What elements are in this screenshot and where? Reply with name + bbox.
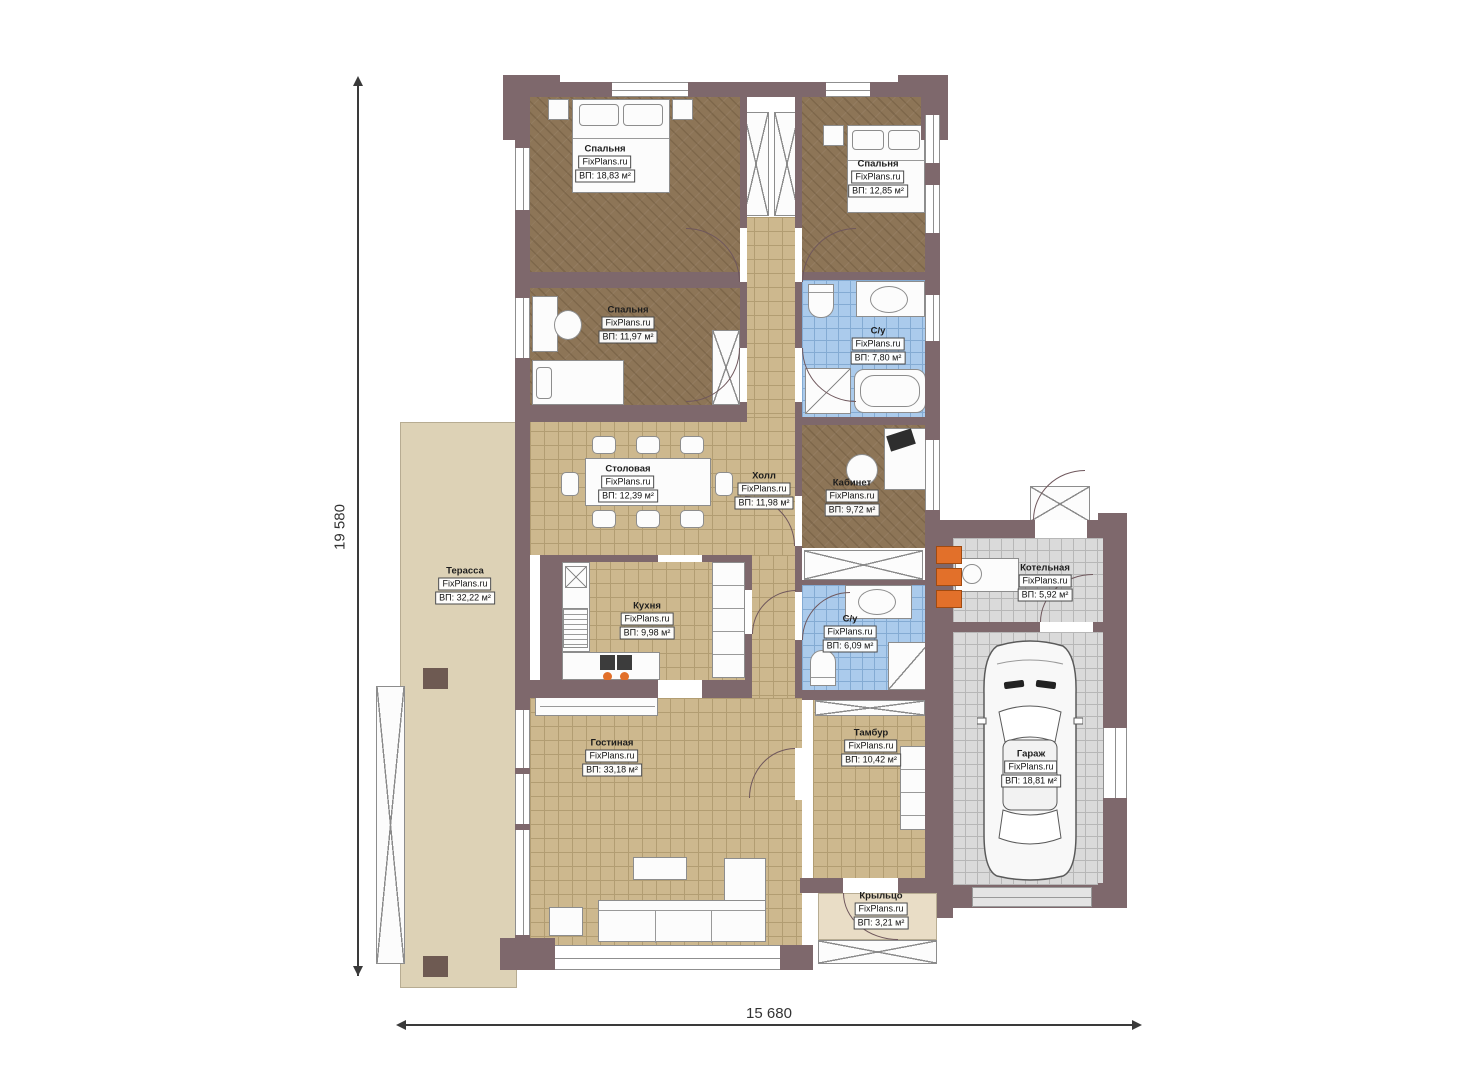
door-opening xyxy=(745,590,752,634)
floor-plan: Спальня FixPlans.ru ВП: 18,83 м² Спальня… xyxy=(0,0,1474,1080)
room-name: Холл xyxy=(752,471,776,482)
dim-arrow-up xyxy=(353,76,363,86)
kitchen-sink-icon xyxy=(565,566,587,588)
brand-watermark: FixPlans.ru xyxy=(823,626,876,639)
wall-segment xyxy=(540,555,562,698)
room-name: Спальня xyxy=(607,305,648,316)
chair-icon xyxy=(680,436,704,454)
wall-segment xyxy=(802,690,940,700)
room-area: ВП: 9,98 м² xyxy=(620,627,675,640)
dimension-line-vertical xyxy=(357,78,359,976)
brand-watermark: FixPlans.ru xyxy=(844,740,897,753)
room-name: Спальня xyxy=(857,159,898,170)
brand-watermark: FixPlans.ru xyxy=(601,476,654,489)
chair-icon xyxy=(636,436,660,454)
wall-segment xyxy=(937,878,953,918)
window xyxy=(555,945,780,970)
room-area: ВП: 33,18 м² xyxy=(582,764,642,777)
door-opening xyxy=(795,228,802,282)
window xyxy=(515,298,530,358)
room-label-bedroom3: Спальня FixPlans.ru ВП: 11,97 м² xyxy=(598,305,657,344)
room-name: Гараж xyxy=(1017,749,1045,760)
brand-watermark: FixPlans.ru xyxy=(1004,761,1057,774)
bed-icon xyxy=(532,360,624,405)
nightstand-icon xyxy=(548,99,569,120)
window-mullion xyxy=(515,768,530,774)
room-area: ВП: 3,21 м² xyxy=(854,917,909,930)
chair-icon xyxy=(680,510,704,528)
chair-icon xyxy=(592,436,616,454)
wall-segment xyxy=(540,555,745,562)
pass-opening xyxy=(658,680,702,698)
electric-panel-icon xyxy=(936,546,962,564)
room-name: Гостиная xyxy=(591,738,634,749)
window xyxy=(826,82,870,97)
room-label-dining: Столовая FixPlans.ru ВП: 12,39 м² xyxy=(598,464,658,503)
chair-icon xyxy=(592,510,616,528)
shower-icon xyxy=(888,642,930,690)
brand-watermark: FixPlans.ru xyxy=(854,903,907,916)
brand-watermark: FixPlans.ru xyxy=(1018,575,1071,588)
dim-arrow-right xyxy=(1132,1020,1142,1030)
closet-icon xyxy=(804,550,923,580)
terrace-floor xyxy=(400,422,517,988)
pillow-icon xyxy=(579,104,619,126)
brand-watermark: FixPlans.ru xyxy=(851,338,904,351)
door-opening xyxy=(795,496,802,546)
brand-watermark: FixPlans.ru xyxy=(438,578,491,591)
window xyxy=(925,440,940,510)
room-label-porch: Крыльцо FixPlans.ru ВП: 3,21 м² xyxy=(854,891,909,930)
chair-icon xyxy=(715,472,733,496)
corner-pillar xyxy=(1098,513,1127,538)
room-area: ВП: 12,85 м² xyxy=(848,185,908,198)
room-area: ВП: 9,72 м² xyxy=(825,504,880,517)
terrace-post xyxy=(423,668,448,689)
brand-watermark: FixPlans.ru xyxy=(851,171,904,184)
chair-icon xyxy=(636,510,660,528)
window-mullion xyxy=(515,824,530,830)
bathtub-icon xyxy=(854,369,926,413)
wall-segment xyxy=(780,945,813,970)
pillow-icon xyxy=(852,130,884,150)
room-name: С/у xyxy=(871,326,886,337)
door-opening xyxy=(795,348,802,402)
corner-pillar xyxy=(503,75,530,140)
room-label-living: Гостиная FixPlans.ru ВП: 33,18 м² xyxy=(582,738,642,777)
room-name: Кабинет xyxy=(833,478,871,489)
window xyxy=(925,185,940,233)
pantry-cabinet-icon xyxy=(712,562,745,678)
hall-corridor-floor xyxy=(740,217,802,417)
dimension-width: 15 680 xyxy=(746,1005,792,1022)
wall-segment xyxy=(515,405,747,422)
garage-door xyxy=(972,887,1092,907)
room-label-bedroom2: Спальня FixPlans.ru ВП: 12,85 м² xyxy=(848,159,908,198)
room-name: Столовая xyxy=(605,464,650,475)
room-name: Крыльцо xyxy=(859,891,902,902)
room-name: Спальня xyxy=(584,144,625,155)
wardrobe-icon xyxy=(900,746,927,830)
dim-arrow-left xyxy=(396,1020,406,1030)
brand-watermark: FixPlans.ru xyxy=(825,490,878,503)
room-area: ВП: 5,92 м² xyxy=(1018,589,1073,602)
wall-segment xyxy=(802,417,940,425)
dim-arrow-down xyxy=(353,966,363,976)
toilet-icon xyxy=(808,284,834,318)
window xyxy=(1103,728,1127,798)
brand-watermark: FixPlans.ru xyxy=(737,483,790,496)
chair-icon xyxy=(561,472,579,496)
room-label-kitchen: Кухня FixPlans.ru ВП: 9,98 м² xyxy=(620,601,675,640)
door-swing xyxy=(1033,470,1085,520)
door-opening xyxy=(740,348,747,402)
porch-steps xyxy=(818,940,937,964)
wall-segment xyxy=(515,82,940,97)
coffee-table-icon xyxy=(633,857,687,880)
toilet-icon xyxy=(810,650,836,686)
pillow-icon xyxy=(536,367,552,399)
electric-panel-icon xyxy=(936,590,962,608)
cooktop-icon xyxy=(617,655,632,670)
cooktop-icon xyxy=(600,655,615,670)
kitchen-island-icon xyxy=(535,696,658,716)
window xyxy=(925,115,940,163)
bathtub-basin xyxy=(860,375,920,407)
terrace-post xyxy=(423,956,448,977)
corner-pillar xyxy=(1098,883,1127,908)
wall-segment xyxy=(795,417,802,698)
sofa-icon xyxy=(598,900,766,942)
wall-segment xyxy=(515,680,658,698)
wall-segment xyxy=(1103,520,1127,908)
terrace-ramp xyxy=(376,686,405,964)
room-name: Терасса xyxy=(446,566,484,577)
pillow-icon xyxy=(623,104,663,126)
pass-opening xyxy=(658,555,702,562)
room-area: ВП: 12,39 м² xyxy=(598,490,658,503)
room-area: ВП: 7,80 м² xyxy=(851,352,906,365)
room-label-bathroom2: С/у FixPlans.ru ВП: 6,09 м² xyxy=(823,614,878,653)
wall-segment xyxy=(702,680,752,698)
door-opening xyxy=(1035,520,1087,538)
room-name: С/у xyxy=(843,614,858,625)
pillow-icon xyxy=(888,130,920,150)
room-name: Тамбур xyxy=(854,728,888,739)
room-area: ВП: 18,83 м² xyxy=(575,170,635,183)
closet-icon xyxy=(815,700,925,716)
corner-pillar xyxy=(500,938,555,970)
room-label-garage: Гараж FixPlans.ru ВП: 18,81 м² xyxy=(1001,749,1061,788)
room-name: Котельная xyxy=(1020,563,1070,574)
brand-watermark: FixPlans.ru xyxy=(601,317,654,330)
sink-icon xyxy=(858,589,896,615)
room-area: ВП: 11,98 м² xyxy=(734,497,793,510)
room-label-bedroom1: Спальня FixPlans.ru ВП: 18,83 м² xyxy=(575,144,635,183)
nightstand-icon xyxy=(823,125,844,146)
wall-segment xyxy=(802,580,925,585)
fridge-icon xyxy=(563,608,588,648)
room-label-hall: Холл FixPlans.ru ВП: 11,98 м² xyxy=(734,471,793,510)
window xyxy=(515,710,530,935)
door-opening xyxy=(1040,622,1093,632)
side-table-icon xyxy=(549,907,583,936)
room-label-boiler: Котельная FixPlans.ru ВП: 5,92 м² xyxy=(1018,563,1073,602)
room-area: ВП: 6,09 м² xyxy=(823,640,878,653)
door-opening xyxy=(795,592,802,640)
brand-watermark: FixPlans.ru xyxy=(578,156,631,169)
brand-watermark: FixPlans.ru xyxy=(620,613,673,626)
electric-panel-icon xyxy=(936,568,962,586)
door-opening xyxy=(740,228,747,282)
window xyxy=(612,82,688,97)
room-label-vestibule: Тамбур FixPlans.ru ВП: 10,42 м² xyxy=(841,728,901,767)
nightstand-icon xyxy=(672,99,693,120)
dimension-height: 19 580 xyxy=(332,504,349,550)
door-opening xyxy=(795,748,813,800)
room-area: ВП: 11,97 м² xyxy=(598,331,657,344)
room-label-office: Кабинет FixPlans.ru ВП: 9,72 м² xyxy=(825,478,880,517)
room-area: ВП: 18,81 м² xyxy=(1001,775,1061,788)
boiler-sink-icon xyxy=(962,564,982,584)
window xyxy=(515,148,530,210)
window xyxy=(925,295,940,341)
dimension-line-horizontal xyxy=(398,1024,1140,1026)
room-label-terrace: Терасса FixPlans.ru ВП: 32,22 м² xyxy=(435,566,495,605)
room-label-bathroom1: С/у FixPlans.ru ВП: 7,80 м² xyxy=(851,326,906,365)
room-area: ВП: 10,42 м² xyxy=(841,754,901,767)
room-area: ВП: 32,22 м² xyxy=(435,592,495,605)
sink-icon xyxy=(870,286,908,313)
chair-icon xyxy=(554,310,582,340)
brand-watermark: FixPlans.ru xyxy=(585,750,638,763)
room-name: Кухня xyxy=(633,601,661,612)
